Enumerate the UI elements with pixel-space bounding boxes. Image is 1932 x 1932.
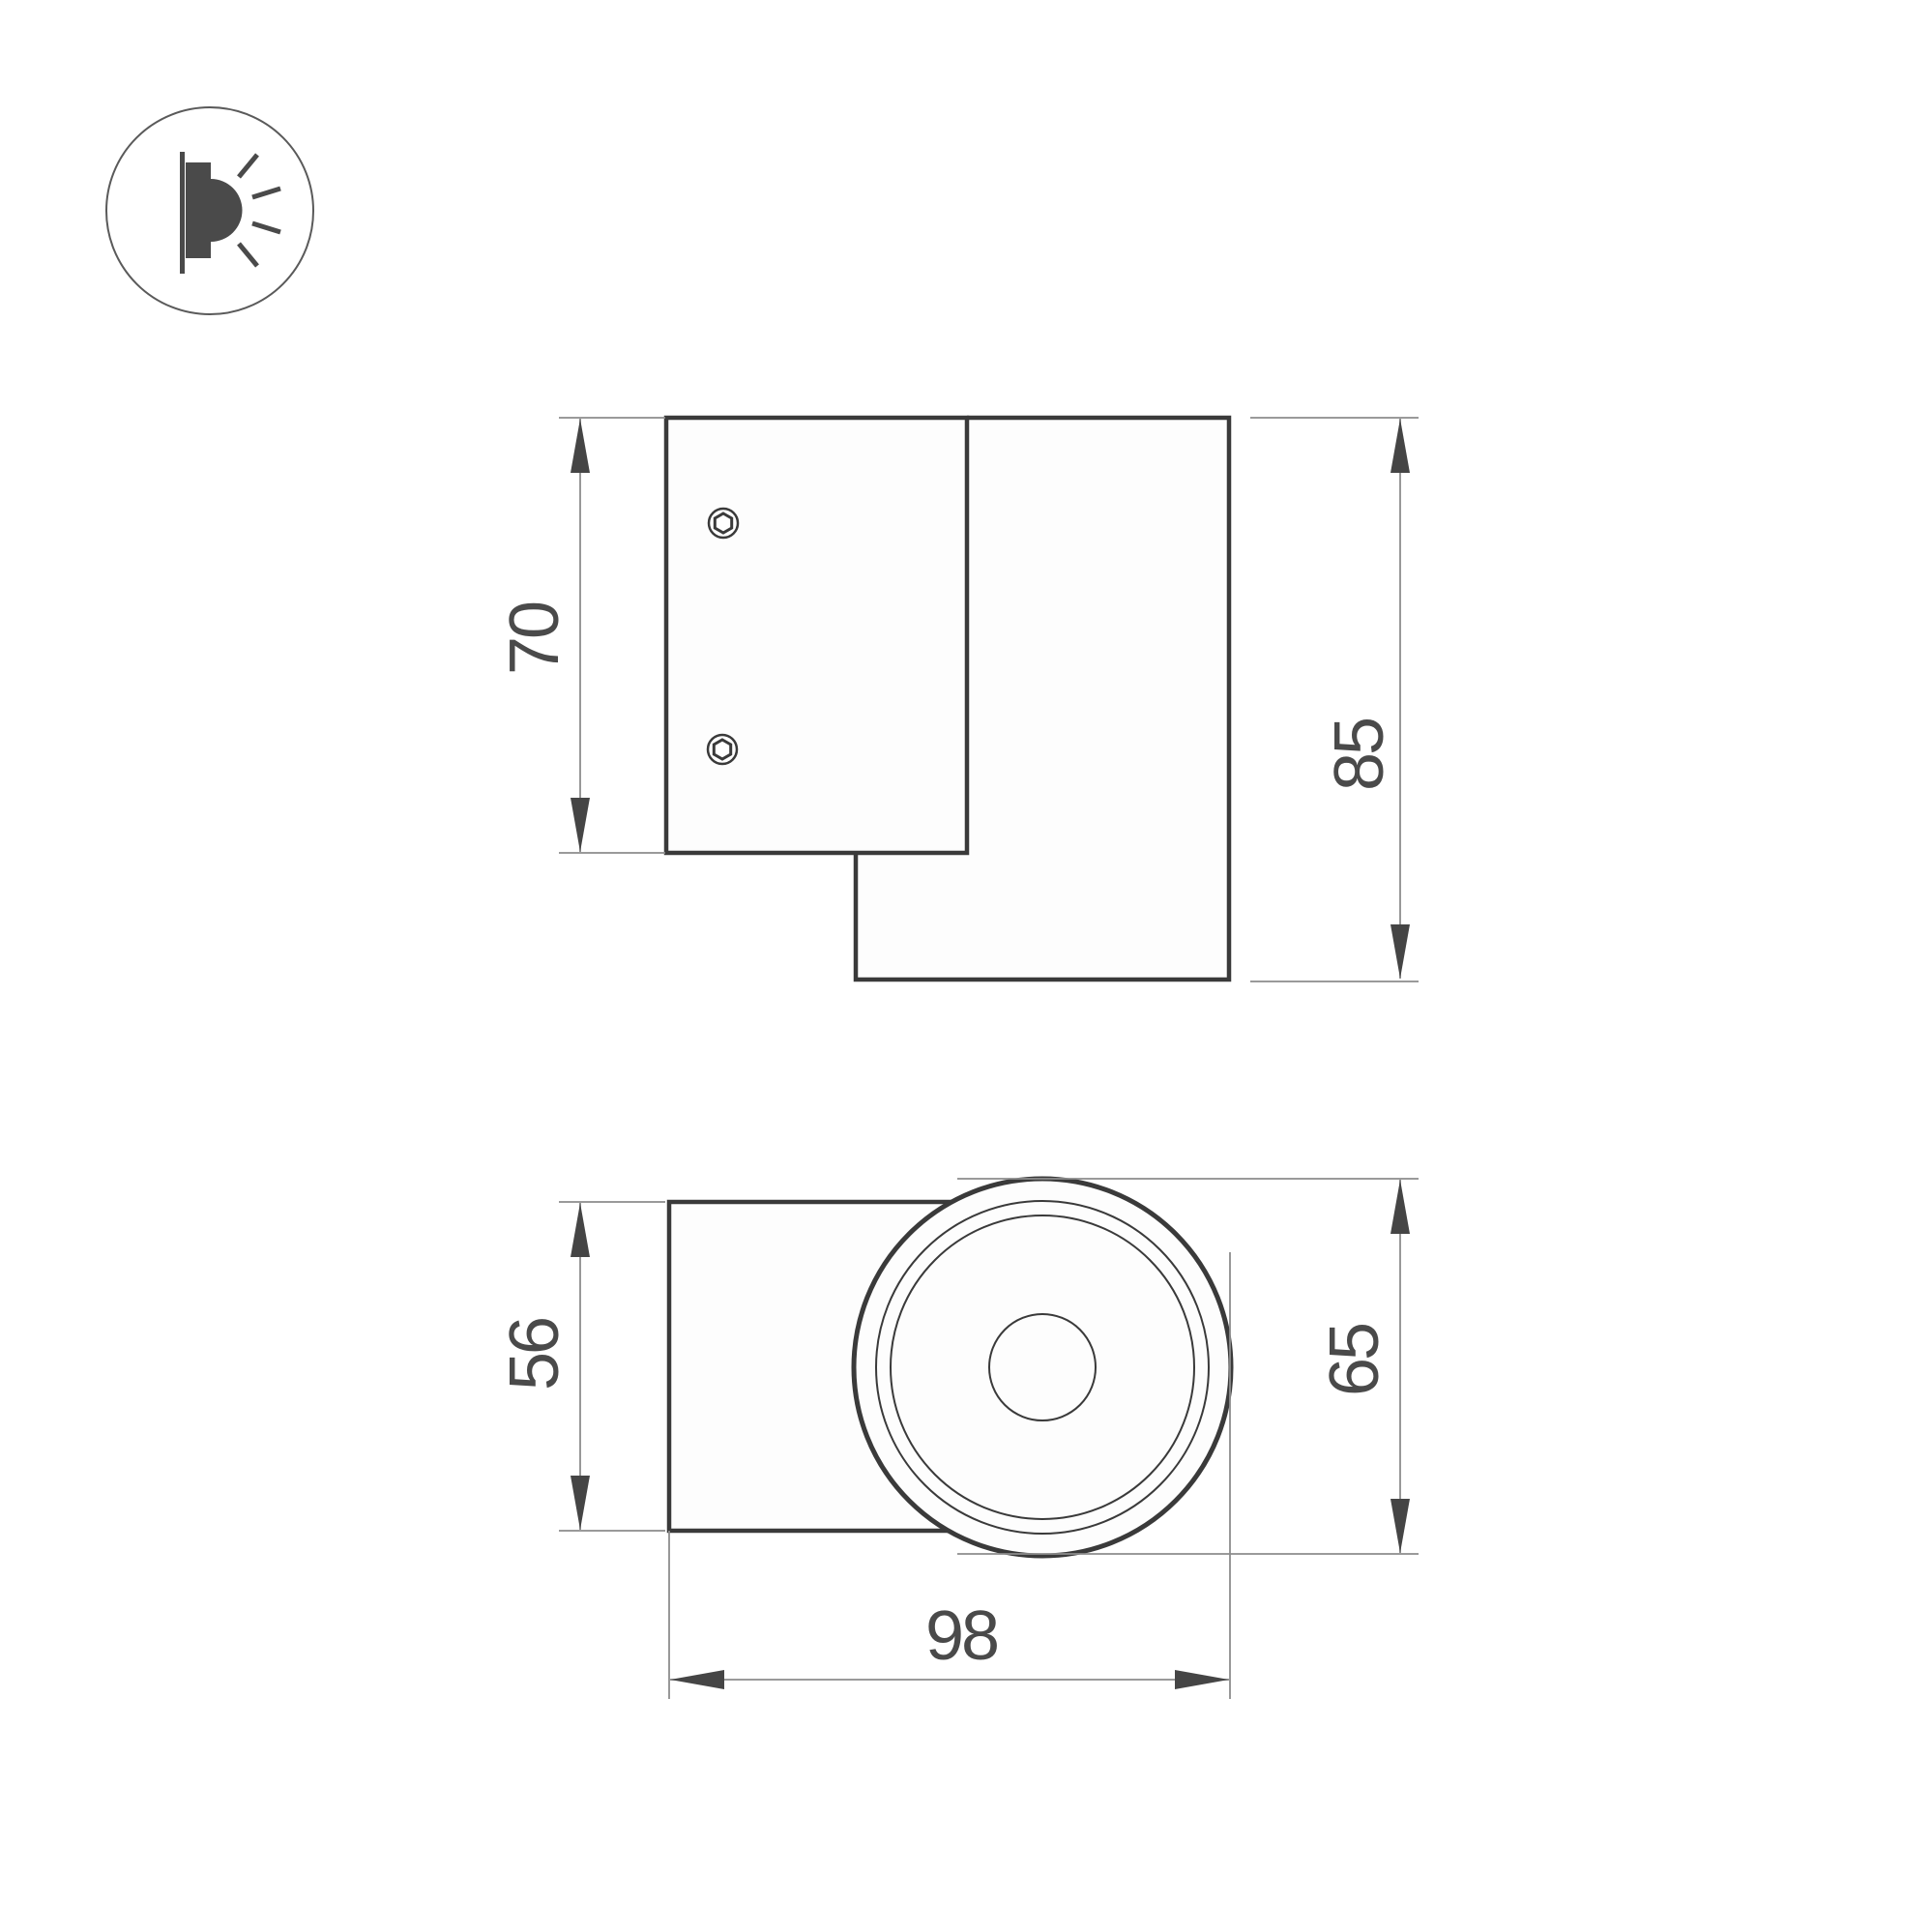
arrow-down-icon [571, 1476, 590, 1530]
icon-lamp-body [186, 162, 211, 258]
side-view: 70 85 [496, 418, 1419, 981]
dimension-label-65: 65 [1316, 1324, 1393, 1396]
arrow-up-icon [1390, 419, 1410, 473]
arrow-up-icon [1390, 1180, 1410, 1234]
dimension-70: 70 [496, 418, 665, 853]
arrow-right-icon [1175, 1670, 1229, 1689]
dimension-56: 56 [496, 1202, 665, 1531]
arrow-down-icon [1390, 1499, 1410, 1553]
arrow-up-icon [571, 1203, 590, 1257]
mounting-plate [666, 418, 967, 853]
dimension-85: 85 [1250, 418, 1419, 981]
face-outer-circle [854, 1179, 1231, 1556]
arrow-down-icon [571, 798, 590, 852]
dimension-label-98: 98 [925, 1597, 997, 1675]
dimension-label-85: 85 [1321, 718, 1398, 791]
dimension-label-56: 56 [496, 1319, 573, 1390]
arrow-left-icon [670, 1670, 724, 1689]
dimension-label-70: 70 [496, 602, 573, 675]
screw-icon-top [709, 509, 738, 538]
arrow-up-icon [571, 419, 590, 473]
arrow-down-icon [1390, 924, 1410, 979]
screw-icon-bottom [708, 735, 737, 764]
wall-light-icon [106, 107, 313, 314]
technical-drawing-canvas: 70 85 56 [0, 0, 1932, 1932]
bottom-view: 56 65 98 [496, 1179, 1419, 1699]
